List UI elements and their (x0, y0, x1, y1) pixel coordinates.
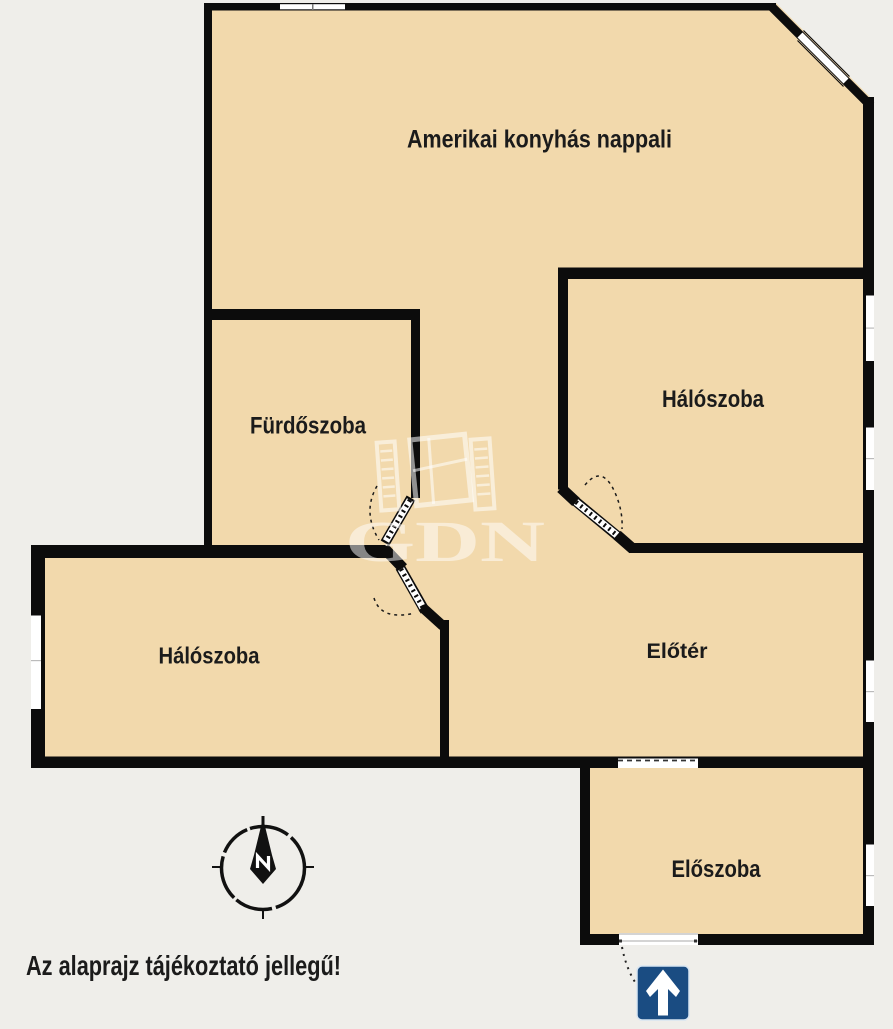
svg-text:Előszoba: Előszoba (672, 856, 762, 883)
svg-text:Hálószoba: Hálószoba (662, 386, 765, 413)
svg-text:Fürdőszoba: Fürdőszoba (250, 413, 367, 440)
svg-text:Előtér: Előtér (647, 639, 709, 663)
svg-text:Hálószoba: Hálószoba (159, 643, 260, 669)
svg-text:Amerikai konyhás nappali: Amerikai konyhás nappali (407, 126, 672, 154)
svg-text:Az alaprajz tájékoztató jelleg: Az alaprajz tájékoztató jellegű! (26, 950, 341, 981)
svg-text:GDN: GDN (345, 509, 545, 574)
